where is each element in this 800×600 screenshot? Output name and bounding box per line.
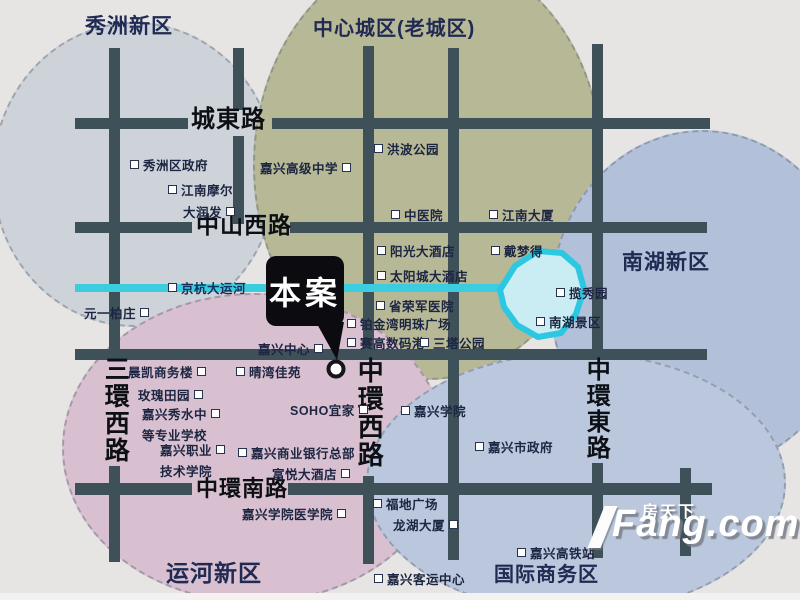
road-label: 三環西路 [102, 356, 128, 464]
poi: 三塔公园 [420, 333, 485, 352]
poi-label: 揽秀园 [569, 283, 608, 302]
poi-label: 铂金湾明珠广场 [360, 314, 451, 333]
poi-line: 嘉兴商业银行总部 [238, 443, 355, 462]
poi-line: 省荣军医院 [376, 296, 454, 315]
poi: 江南摩尔 [168, 180, 233, 199]
poi-marker-icon [238, 448, 247, 457]
poi: 嘉兴市政府 [475, 437, 553, 456]
poi-label: 太阳城大酒店 [390, 266, 468, 285]
poi-marker-icon [341, 469, 350, 478]
poi-marker-icon [130, 160, 139, 169]
poi: 京杭大运河 [168, 278, 246, 297]
poi: 晨凯商务楼 [128, 362, 206, 381]
poi: 嘉兴商业银行总部富悦大酒店 [238, 443, 355, 483]
poi-line: 玫瑰田园 [138, 385, 203, 404]
poi: 赛高数码港 [347, 333, 425, 352]
poi-label: 秀洲区政府 [143, 155, 208, 174]
image-bottom-edge [0, 593, 800, 600]
poi-label: 嘉兴高级中学 [260, 158, 338, 177]
poi-marker-icon [376, 301, 385, 310]
poi-line: 嘉兴客运中心 [374, 569, 465, 588]
poi: 嘉兴职业技术学院 [160, 440, 225, 480]
poi-marker-icon [373, 499, 382, 508]
poi-label: 晴湾佳苑 [249, 362, 301, 381]
poi-line: 嘉兴秀水中 [142, 404, 220, 423]
district-title: 运河新区 [166, 554, 262, 588]
poi-label: 阳光大酒店 [390, 241, 455, 260]
poi-marker-icon [449, 520, 458, 529]
poi-line: 技术学院 [160, 461, 225, 480]
poi-line: 嘉兴学院医学院 [242, 504, 346, 523]
poi: 嘉兴学院 [401, 401, 466, 420]
poi-label: 南湖景区 [549, 312, 601, 331]
poi-line: 洪波公园 [374, 139, 439, 158]
poi-marker-icon [314, 344, 323, 353]
poi-marker-icon [226, 207, 235, 216]
poi-marker-icon [489, 210, 498, 219]
poi-marker-icon [377, 271, 386, 280]
road-segment [109, 466, 120, 562]
watermark-fang-en: Fang.com [612, 507, 799, 541]
location-map: 秀洲新区中心城区(老城区)南湖新区运河新区国际商务区城東路中山西路中環南路三環西… [0, 0, 800, 600]
poi: 嘉兴学院医学院 [242, 504, 346, 523]
poi: 嘉兴高级中学 [260, 158, 351, 177]
poi: 福地广场龙湖大厦 [373, 494, 458, 534]
poi-line: 龙湖大厦 [393, 515, 458, 534]
poi-line: SOHO宜家 [290, 400, 368, 419]
poi-marker-icon [475, 442, 484, 451]
poi: 洪波公园 [374, 139, 439, 158]
district-title: 秀洲新区 [85, 10, 173, 40]
poi-line: 揽秀园 [556, 283, 608, 302]
poi-label: 玫瑰田园 [138, 385, 190, 404]
poi: 铂金湾明珠广场 [347, 314, 451, 333]
poi-marker-icon [140, 308, 149, 317]
poi-marker-icon [401, 406, 410, 415]
poi: 中医院 [391, 205, 443, 224]
road-label: 城東路 [191, 107, 266, 132]
road-segment [288, 483, 712, 495]
poi-label: 富悦大酒店 [272, 464, 337, 483]
poi-line: 铂金湾明珠广场 [347, 314, 451, 333]
poi: 太阳城大酒店 [377, 266, 468, 285]
poi-line: 三塔公园 [420, 333, 485, 352]
poi-label: 嘉兴客运中心 [387, 569, 465, 588]
poi: 晴湾佳苑 [236, 362, 301, 381]
road-segment [75, 483, 192, 495]
poi: 戴梦得 [491, 241, 543, 260]
poi-line: 嘉兴学院 [401, 401, 466, 420]
poi-marker-icon [536, 317, 545, 326]
poi-label: 嘉兴职业 [160, 440, 212, 459]
poi-marker-icon [359, 405, 368, 414]
poi-line: 晨凯商务楼 [128, 362, 206, 381]
poi-marker-icon [168, 185, 177, 194]
poi-line: 赛高数码港 [347, 333, 425, 352]
poi-marker-icon [420, 338, 429, 347]
poi-label: 技术学院 [160, 461, 212, 480]
poi: 省荣军医院 [376, 296, 454, 315]
poi-line: 福地广场 [373, 494, 458, 513]
poi-marker-icon [337, 509, 346, 518]
road-label: 中環東路 [583, 357, 608, 461]
road-segment [363, 46, 374, 356]
poi-label: 洪波公园 [387, 139, 439, 158]
poi-line: 阳光大酒店 [377, 241, 455, 260]
poi: 揽秀园 [556, 283, 608, 302]
poi-label: 嘉兴中心 [258, 339, 310, 358]
poi-label: 嘉兴高铁站 [530, 543, 595, 562]
poi-line: 嘉兴高铁站 [517, 543, 595, 562]
poi-label: 嘉兴秀水中 [142, 404, 207, 423]
poi-marker-icon [491, 246, 500, 255]
poi-line: 嘉兴市政府 [475, 437, 553, 456]
poi-line: 元一柏庄 [84, 303, 149, 322]
poi: 玫瑰田园 [138, 385, 203, 404]
poi: SOHO宜家 [290, 400, 368, 419]
poi-marker-icon [347, 319, 356, 328]
poi-line: 戴梦得 [491, 241, 543, 260]
poi-label: 嘉兴商业银行总部 [251, 443, 355, 462]
poi-marker-icon [391, 210, 400, 219]
poi-line: 嘉兴职业 [160, 440, 225, 459]
poi: 嘉兴秀水中等专业学校 [142, 404, 220, 444]
poi: 大润发 [183, 202, 235, 221]
road-segment [75, 222, 192, 233]
poi-label: 京杭大运河 [181, 278, 246, 297]
poi: 嘉兴高铁站 [517, 543, 595, 562]
poi-marker-icon [517, 548, 526, 557]
poi-line: 南湖景区 [536, 312, 601, 331]
poi-line: 太阳城大酒店 [377, 266, 468, 285]
poi-marker-icon [194, 390, 203, 399]
poi-label: 戴梦得 [504, 241, 543, 260]
district-title: 国际商务区 [494, 558, 599, 587]
poi-line: 大润发 [183, 202, 235, 221]
district-title: 南湖新区 [622, 246, 710, 276]
poi-line: 富悦大酒店 [272, 464, 355, 483]
poi: 阳光大酒店 [377, 241, 455, 260]
poi: 秀洲区政府 [130, 155, 208, 174]
road-segment [592, 44, 603, 356]
poi: 南湖景区 [536, 312, 601, 331]
poi-label: 嘉兴学院医学院 [242, 504, 333, 523]
poi-label: 省荣军医院 [389, 296, 454, 315]
poi: 江南大厦 [489, 205, 554, 224]
poi-label: 晨凯商务楼 [128, 362, 193, 381]
poi-label: 龙湖大厦 [393, 515, 445, 534]
poi-marker-icon [342, 163, 351, 172]
poi: 嘉兴中心 [258, 339, 323, 358]
project-callout-label: 本案 [269, 268, 341, 314]
poi-line: 江南大厦 [489, 205, 554, 224]
district-title: 中心城区(老城区) [313, 12, 475, 41]
poi-label: 中医院 [404, 205, 443, 224]
poi-marker-icon [374, 144, 383, 153]
poi-label: 大润发 [183, 202, 222, 221]
poi-line: 嘉兴高级中学 [260, 158, 351, 177]
road-segment [272, 118, 710, 129]
road-segment [233, 48, 244, 110]
poi-label: SOHO宜家 [290, 400, 355, 419]
poi-label: 福地广场 [386, 494, 438, 513]
poi-line: 晴湾佳苑 [236, 362, 301, 381]
poi-label: 江南大厦 [502, 205, 554, 224]
poi-label: 嘉兴市政府 [488, 437, 553, 456]
poi-marker-icon [374, 574, 383, 583]
poi-marker-icon [347, 338, 356, 347]
poi-marker-icon [211, 409, 220, 418]
poi-marker-icon [168, 283, 177, 292]
poi-line: 中医院 [391, 205, 443, 224]
poi-label: 嘉兴学院 [414, 401, 466, 420]
poi-marker-icon [556, 288, 565, 297]
poi-label: 江南摩尔 [181, 180, 233, 199]
poi-marker-icon [197, 367, 206, 376]
poi-line: 秀洲区政府 [130, 155, 208, 174]
poi-line: 江南摩尔 [168, 180, 233, 199]
poi-label: 三塔公园 [433, 333, 485, 352]
project-callout: 本案 [266, 256, 344, 326]
road-segment [75, 118, 188, 129]
poi-line: 京杭大运河 [168, 278, 246, 297]
poi: 嘉兴客运中心 [374, 569, 465, 588]
poi-marker-icon [236, 367, 245, 376]
poi-marker-icon [377, 246, 386, 255]
poi: 元一柏庄 [84, 303, 149, 322]
poi-label: 元一柏庄 [84, 303, 136, 322]
poi-marker-icon [216, 445, 225, 454]
poi-line: 嘉兴中心 [258, 339, 323, 358]
poi-label: 赛高数码港 [360, 333, 425, 352]
